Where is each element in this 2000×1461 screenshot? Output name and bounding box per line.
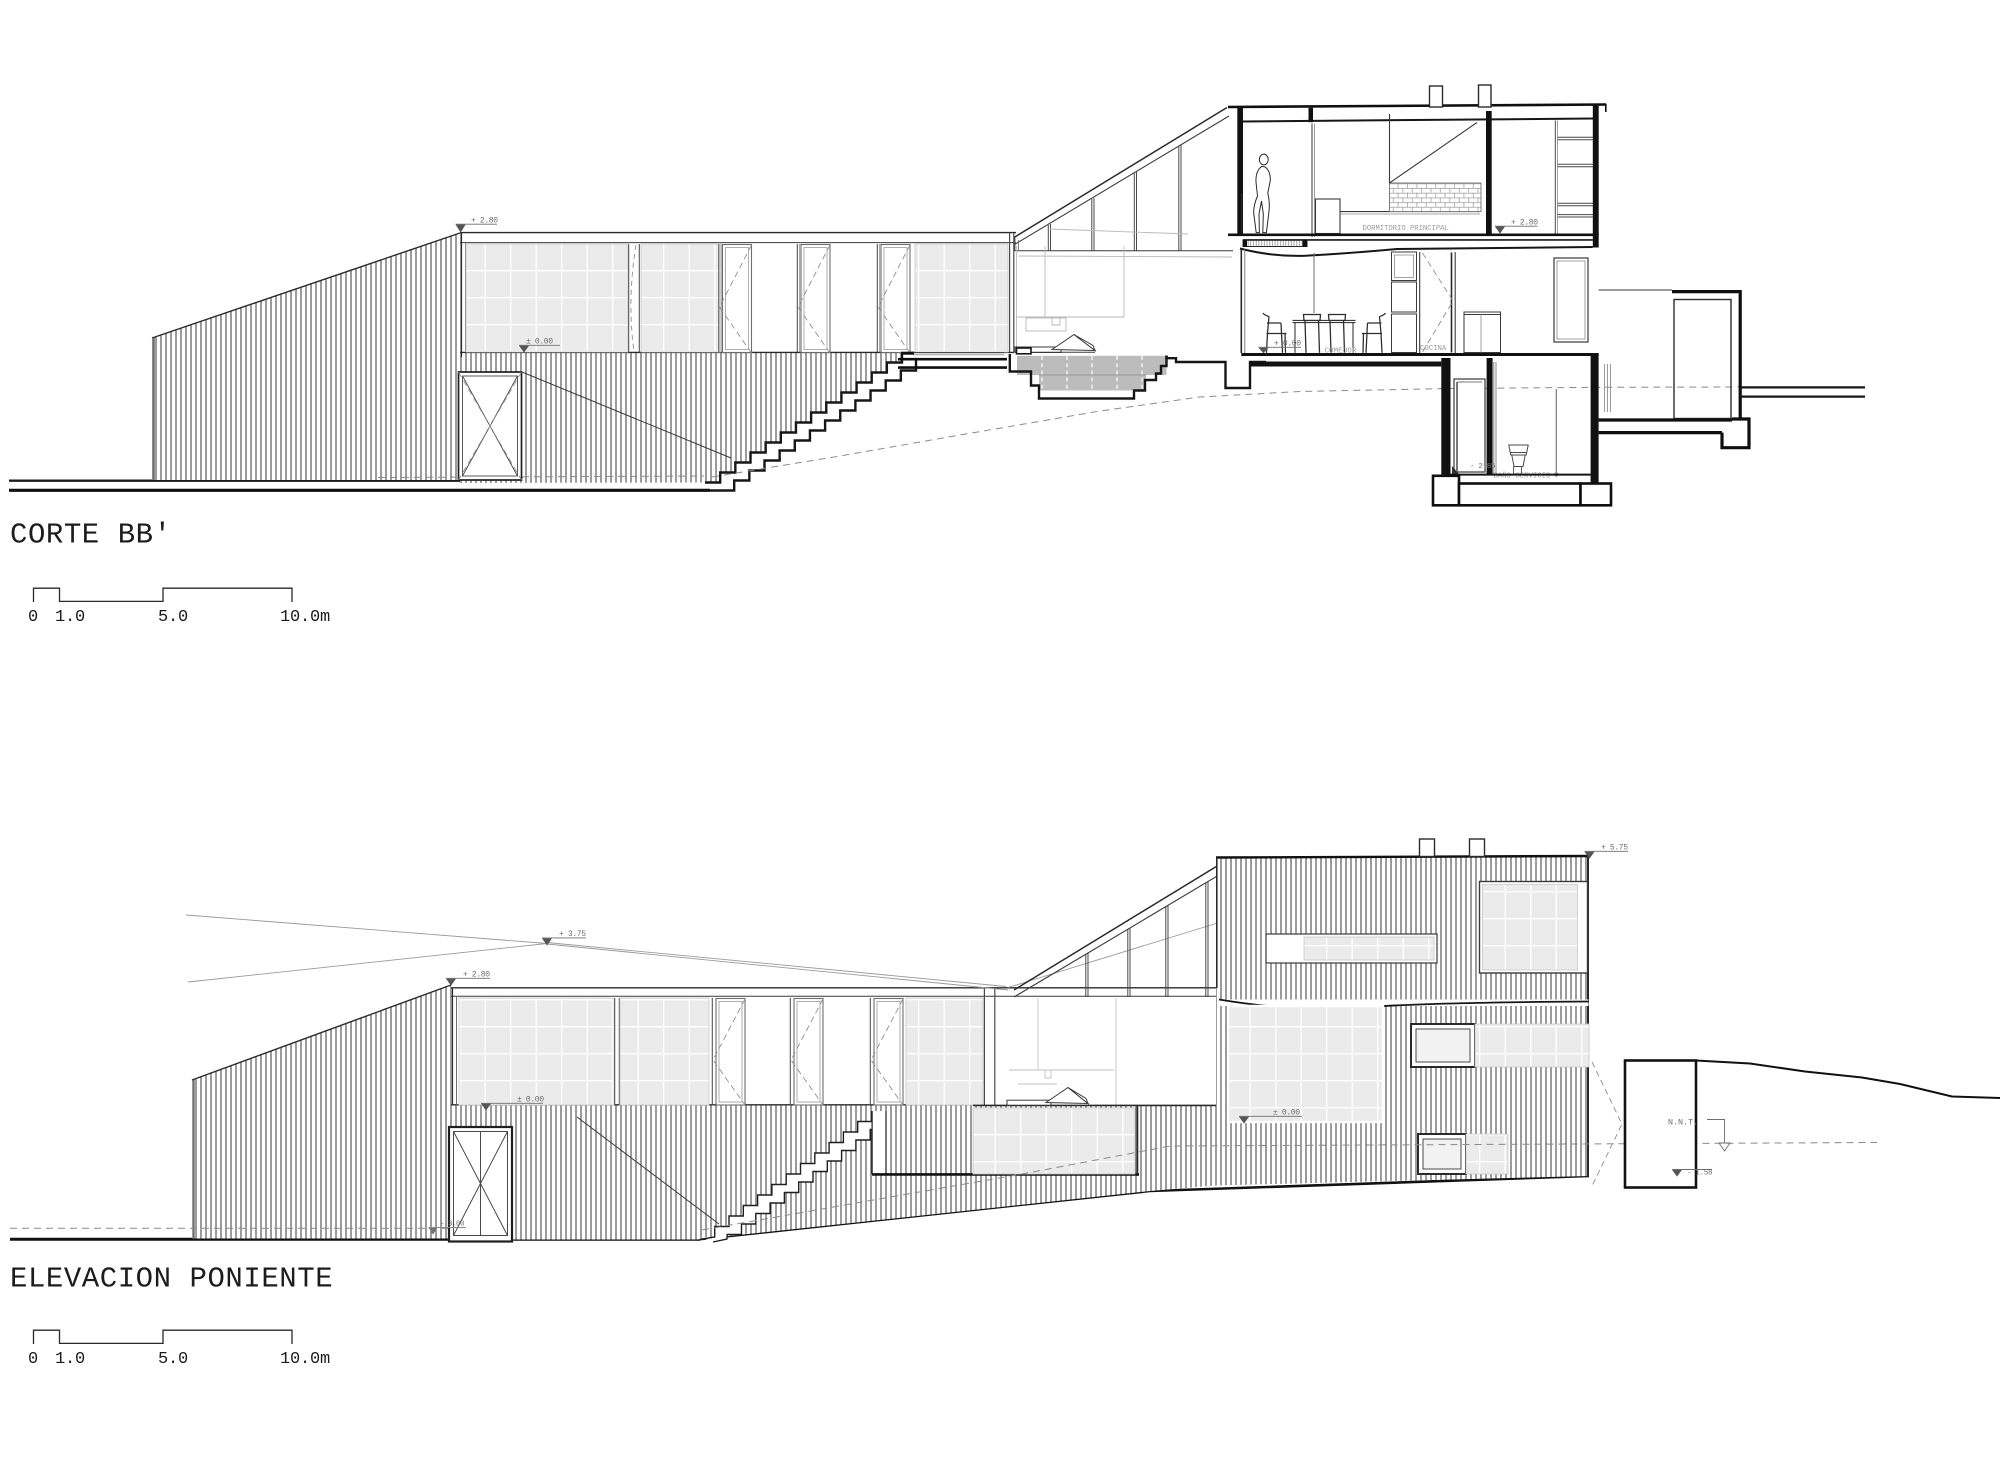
svg-text:DORMITORIO PRINCIPAL: DORMITORIO PRINCIPAL <box>1363 225 1449 233</box>
svg-text:+ 3.75: + 3.75 <box>559 930 586 939</box>
svg-text:0: 0 <box>28 1350 38 1369</box>
svg-text:5.0: 5.0 <box>158 608 188 627</box>
svg-text:+ 0.00: + 0.00 <box>1274 340 1301 349</box>
svg-text:+ 2.80: + 2.80 <box>1511 219 1538 228</box>
svg-text:10.0m: 10.0m <box>280 1350 330 1369</box>
svg-text:ELEVACION PONIENTE: ELEVACION PONIENTE <box>10 1263 333 1296</box>
svg-text:- 3.00: - 3.00 <box>440 1221 464 1229</box>
svg-text:1.0: 1.0 <box>55 1350 85 1369</box>
svg-text:5.0: 5.0 <box>158 1350 188 1369</box>
svg-text:± 0.00: ± 0.00 <box>526 338 553 347</box>
svg-text:± 0.00: ± 0.00 <box>1273 1109 1300 1118</box>
svg-text:CORTE BB': CORTE BB' <box>10 519 172 552</box>
svg-text:+ 2.80: + 2.80 <box>463 971 490 980</box>
svg-text:0: 0 <box>28 608 38 627</box>
svg-text:- 1.58: - 1.58 <box>1687 1170 1712 1178</box>
svg-text:10.0m: 10.0m <box>280 608 330 627</box>
svg-text:± 0.00: ± 0.00 <box>517 1096 544 1105</box>
svg-text:- 2.85: - 2.85 <box>1470 463 1496 471</box>
svg-text:+ 5.75: + 5.75 <box>1601 844 1628 853</box>
svg-text:1.0: 1.0 <box>55 608 85 627</box>
svg-text:BAÑO SERVICIO: BAÑO SERVICIO <box>1494 472 1552 481</box>
svg-text:+ 2.80: + 2.80 <box>471 217 498 226</box>
svg-text:N.N.T.: N.N.T. <box>1668 1118 1698 1128</box>
